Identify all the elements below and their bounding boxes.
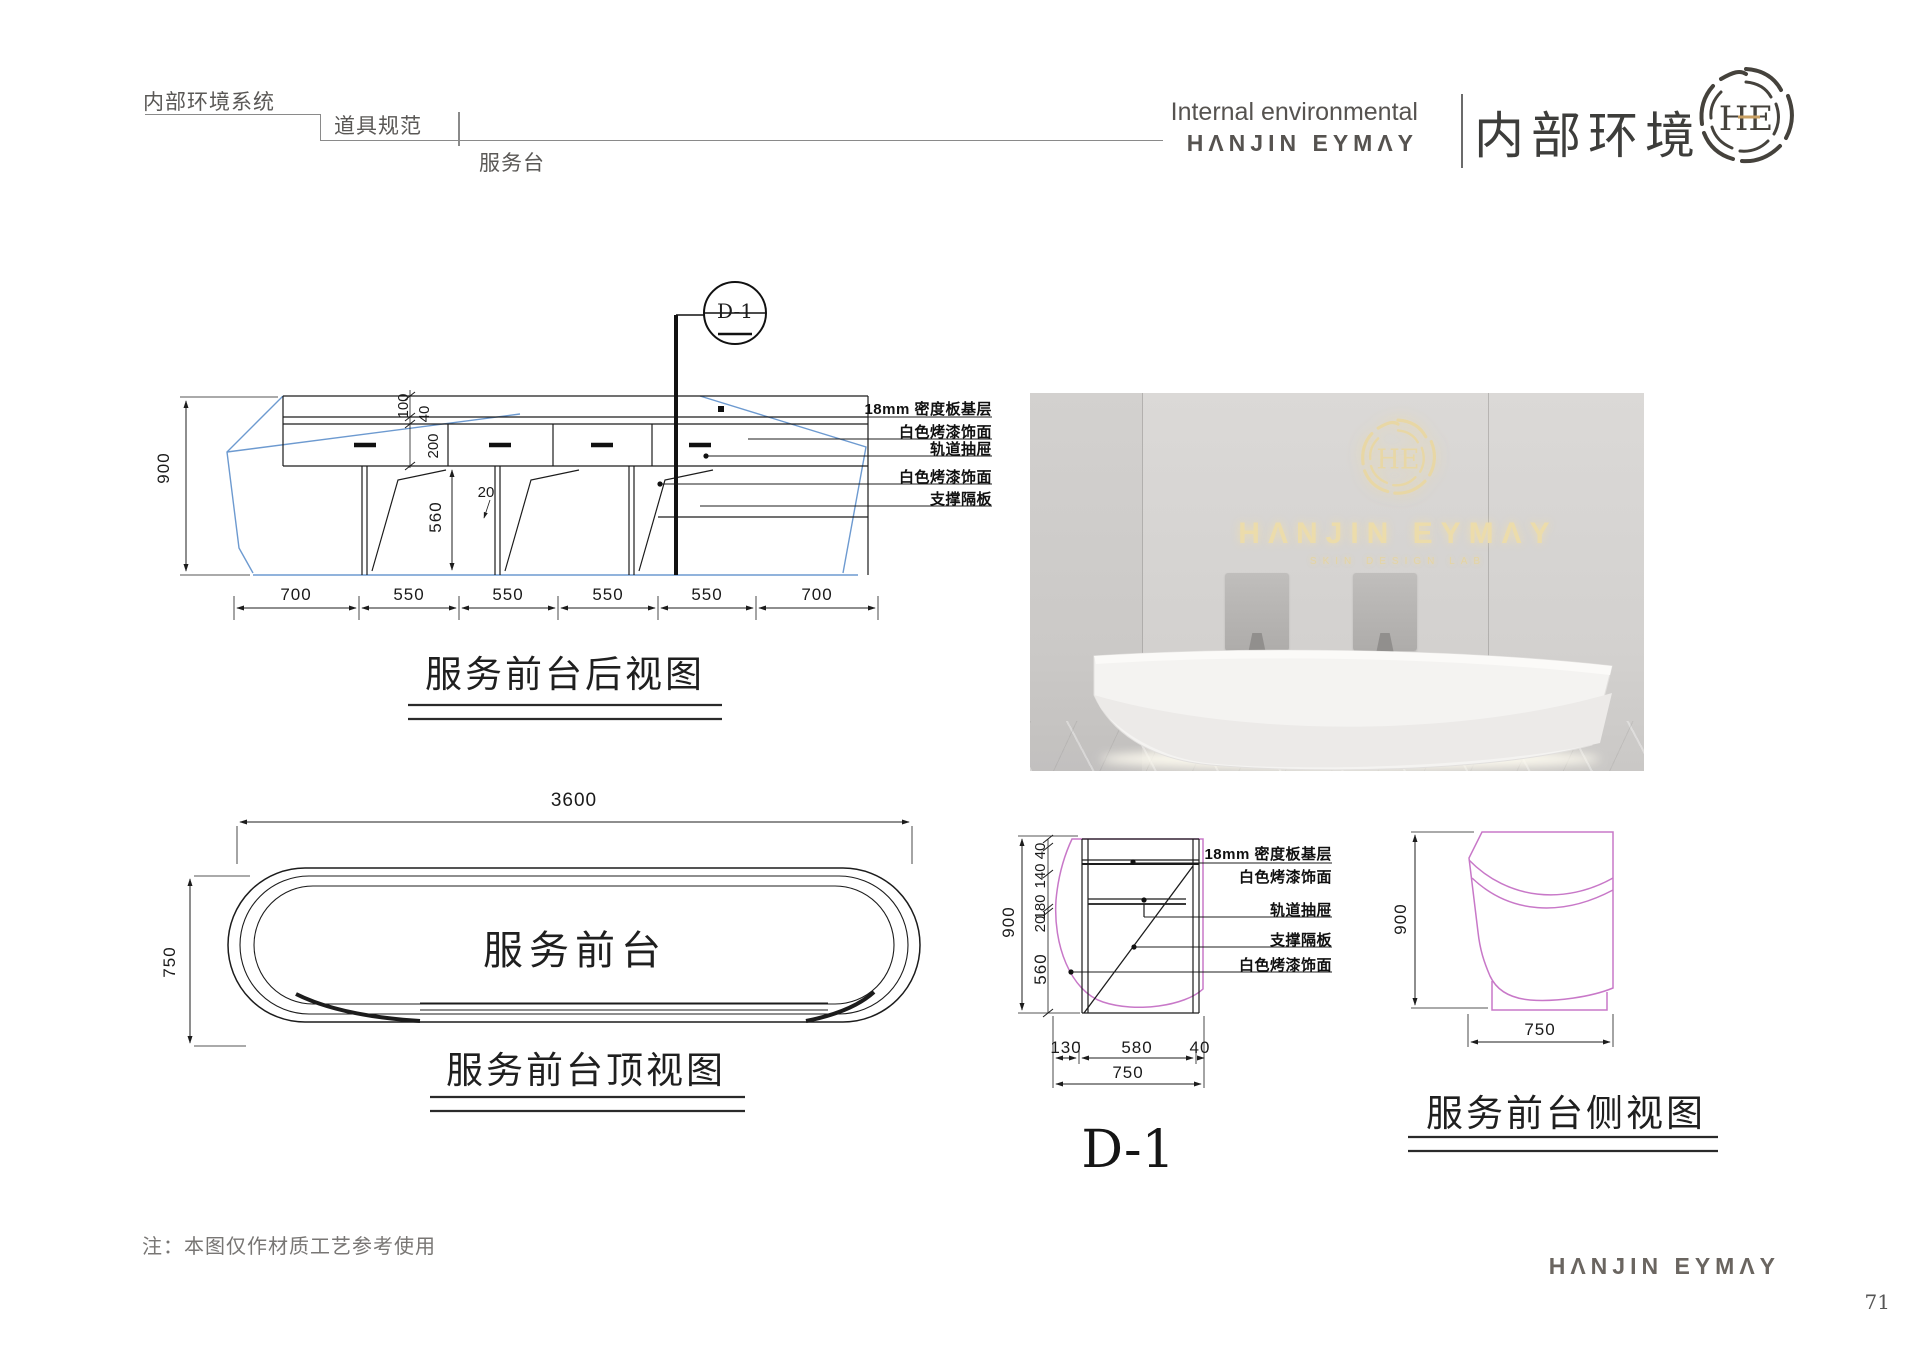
detail-annotation-1: 18mm 密度板基层 — [1120, 843, 1332, 864]
document-page: 内部环境系统 道具规范 服务台 Internal environmental H… — [0, 0, 1920, 1357]
detail-dim-bottom-2: 580 — [1107, 1038, 1167, 1058]
side-view-title: 服务前台侧视图 — [1390, 1083, 1742, 1137]
rear-dim-drawer: 200 — [425, 424, 441, 468]
rear-dim-top: 100 — [395, 384, 411, 428]
rear-view-title: 服务前台后视图 — [395, 644, 735, 698]
detail-dim-left-4: 20 — [1032, 900, 1048, 948]
side-view-outline — [1469, 832, 1613, 1010]
rear-dim-seg-6: 700 — [787, 585, 847, 605]
detail-dim-total: 750 — [1098, 1063, 1158, 1083]
rear-view-title-underline — [408, 705, 722, 719]
rear-dim-lower: 560 — [426, 493, 444, 541]
rear-annotation-3: 轨道抽屉 — [760, 438, 992, 459]
rear-dim-seg-5: 550 — [677, 585, 737, 605]
top-view-label: 服务前台 — [455, 918, 695, 976]
rear-annotation-4: 白色烤漆饰面 — [760, 466, 992, 487]
detail-annotation-2: 白色烤漆饰面 — [1120, 866, 1332, 887]
detail-dim-bottom-3: 40 — [1170, 1038, 1230, 1058]
top-dim-width: 3600 — [534, 790, 614, 812]
side-dim-height: 900 — [1391, 895, 1409, 943]
side-view-dimensions — [1411, 832, 1613, 1047]
side-view-title-underline — [1408, 1137, 1718, 1151]
detail-callout-label: D-1 — [710, 299, 760, 323]
rear-dim-seg-1: 700 — [266, 585, 326, 605]
detail-dim-bottom-1: 130 — [1036, 1038, 1096, 1058]
reception-render-photo: HE HΛNJIN EYMΛY SKIN DESIGN LAB — [1030, 393, 1644, 771]
rear-dim-seg-3: 550 — [478, 585, 538, 605]
side-dim-width: 750 — [1505, 1020, 1575, 1040]
detail-dim-left-5: 560 — [1031, 945, 1049, 993]
rear-dim-panel: 20 — [470, 484, 502, 501]
top-dim-depth: 750 — [160, 938, 178, 986]
rear-annotation-1: 18mm 密度板基层 — [760, 398, 992, 419]
page-number: 71 — [1840, 1290, 1890, 1314]
top-view-title: 服务前台顶视图 — [412, 1040, 760, 1094]
detail-annotation-3: 轨道抽屉 — [1120, 899, 1332, 920]
detail-annotation-5: 白色烤漆饰面 — [1120, 954, 1332, 975]
detail-annotation-4: 支撑隔板 — [1120, 929, 1332, 950]
top-view-title-underline — [430, 1097, 745, 1111]
rear-dim-seg-2: 550 — [379, 585, 439, 605]
detail-dim-height: 900 — [999, 898, 1017, 946]
footer-brand: HΛNJIN EYMΛY — [1480, 1253, 1780, 1280]
detail-title: D-1 — [1058, 1120, 1198, 1180]
footer-note: 注：本图仅作材质工艺参考使用 — [142, 1230, 436, 1259]
rear-dim-seg-4: 550 — [578, 585, 638, 605]
rear-view-section-cut — [676, 282, 766, 575]
rear-dim-height: 900 — [154, 444, 172, 492]
rear-annotation-5: 支撑隔板 — [760, 488, 992, 509]
photo-reception-desk — [1030, 393, 1644, 771]
